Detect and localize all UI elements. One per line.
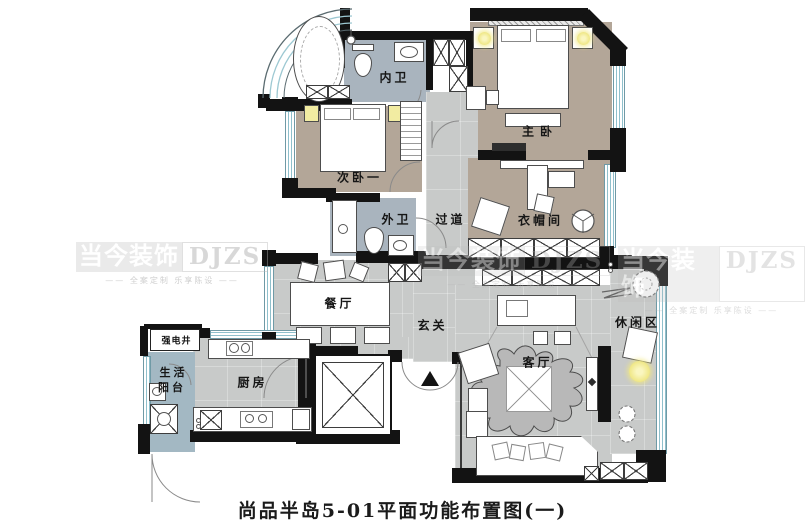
stool [554,331,571,345]
cabinet-x [433,39,449,66]
pillow [353,108,380,120]
wardrobe-x [501,238,534,258]
label-balcony-line1: 生活 [160,366,188,379]
vanity-side [548,171,575,188]
label-foyer: 玄关 [414,317,447,334]
cabinet [292,409,310,430]
elevator-x [322,362,384,428]
wardrobe-x [534,238,567,258]
wall [340,8,350,34]
cabinet-x [584,466,599,481]
cabinet-x [449,39,465,66]
label-master-bedroom: 主卧 [516,123,558,140]
cabinet-x [542,269,572,286]
wardrobe-x [468,238,501,258]
bathtub-inner [300,26,340,94]
chair [364,327,390,344]
tv-unit-master [492,143,526,151]
plan-title: 尚品半岛5-01平面功能布置图(一) [238,496,568,523]
pillow [324,108,351,120]
cabinet-x [328,85,350,99]
label-utility-shaft: 强电井 [160,334,191,347]
wall [138,424,150,454]
chair [330,327,356,344]
label-leisure: 休闲区 [612,314,660,331]
socket-symbol [608,268,613,273]
wall [478,150,526,160]
door-arc-entry-left [402,362,430,390]
dresser-stool [486,90,499,105]
floor-plan-canvas: 内卫 主卧 次卧一 外卫 过道 衣帽间 餐厅 玄关 休闲区 客厅 厨房 生活 阳… [0,0,805,531]
kitchen-counter [208,339,310,359]
cabinet-x [572,269,600,286]
wall [460,362,462,470]
wall [140,326,148,356]
watermark-abbr: DJZS [719,246,805,302]
window-kitchen [210,330,300,339]
pillow [501,29,531,42]
socket-symbol [608,262,613,267]
socket-symbol [196,418,201,423]
wardrobe [400,101,422,161]
decor-chair [323,260,346,282]
wall [598,346,611,422]
label-inner-bath: 内卫 [376,69,409,86]
sink-basin [241,343,250,353]
label-living: 客厅 [519,354,552,371]
watermark-brand: 当今装饰 [76,242,182,272]
door-arc-entry-right [430,362,458,390]
label-kitchen: 厨房 [234,374,267,391]
cabinet-x [306,85,328,99]
label-dining: 餐厅 [321,295,354,312]
label-corridor: 过道 [432,211,465,228]
drain [338,224,348,234]
wall [258,94,270,108]
sideboard-x [405,263,422,282]
entry-arrow [421,371,439,386]
sink-basin [393,240,407,251]
wardrobe-x [567,238,600,258]
sink-basin [400,46,418,58]
pillow [492,442,511,461]
washer-drum [157,412,171,426]
burner [258,414,267,423]
wall [644,256,668,286]
label-outer-bath: 外卫 [378,211,411,228]
pillow [536,29,566,42]
cabinet-x [600,462,624,480]
sideboard-x [388,263,405,282]
window-dining [264,266,274,334]
cabinet-x [512,269,542,286]
window-cloakroom [604,164,616,248]
side-chair [468,388,488,413]
label-cloakroom: 衣帽间 [515,212,563,229]
socket-symbol [196,424,201,429]
wall [588,150,622,160]
watermark-logo: 当今装饰 DJZS [76,242,268,272]
lamp [478,32,491,45]
window-leisure [656,284,667,454]
wall [452,468,472,483]
pillow [509,444,526,461]
nightstand-lamp [304,105,319,122]
toilet-tank [352,44,374,51]
floor-lamp [629,361,650,382]
label-balcony-line2: 阳台 [158,381,186,394]
stool [533,331,548,345]
window-master-bedroom [613,64,625,130]
wall [426,38,433,90]
wall [470,8,588,21]
window-second-bedroom [285,111,295,181]
label-balcony: 生活 阳台 [157,365,188,395]
watermark: 当今装饰 DJZS —— 全案定制 乐享陈设 —— [76,242,268,286]
side-table [466,411,488,438]
dresser [466,86,486,110]
label-second-bedroom: 次卧一 [334,169,382,186]
lamp [577,32,590,45]
door-arc-balcony [152,454,200,502]
burner [245,414,254,423]
watermark-slogan: —— 全案定制 乐享陈设 —— [105,275,239,286]
cabinet-x [482,269,512,286]
tv [506,300,528,317]
cabinet-x [624,462,648,480]
watermark-abbr: DJZS [182,242,268,272]
wall [610,48,626,66]
cabinet-x [200,410,222,430]
coffee-table [506,366,552,412]
pillow [528,442,546,460]
sink-basin [229,343,239,353]
